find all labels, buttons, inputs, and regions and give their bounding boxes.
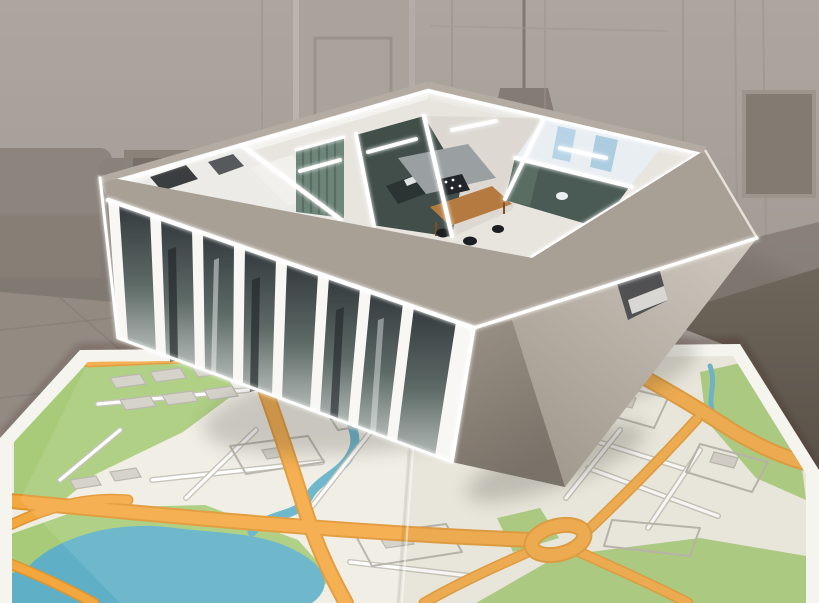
chair (436, 229, 450, 238)
window-pane (243, 248, 276, 395)
window-pane (161, 219, 195, 366)
window-pane (203, 233, 234, 381)
stool (556, 192, 568, 200)
scene (0, 0, 819, 603)
chair (463, 237, 477, 246)
chair (492, 225, 504, 233)
